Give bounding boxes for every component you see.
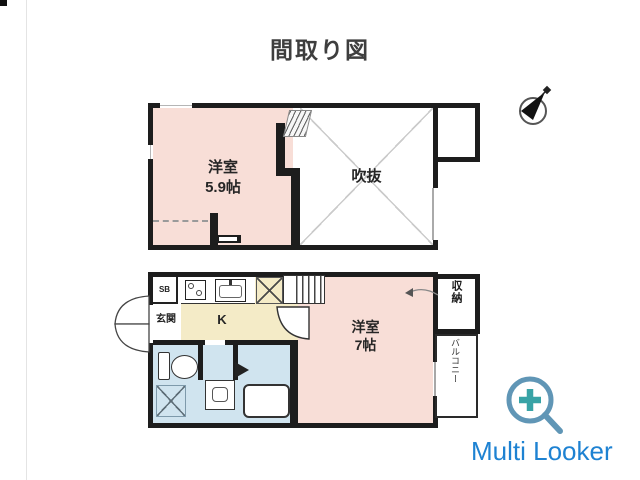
storage-label: 収納 bbox=[448, 280, 464, 328]
refrigerator-space bbox=[256, 277, 283, 304]
window-opening bbox=[433, 362, 438, 396]
zoom-plus-icon bbox=[502, 372, 568, 438]
room-name: 洋室 bbox=[352, 319, 380, 335]
room-label-2f: 洋室 5.9帖 bbox=[173, 158, 273, 197]
window-opening bbox=[429, 188, 438, 240]
north-compass-icon bbox=[515, 84, 557, 130]
toilet-icon bbox=[171, 355, 198, 379]
door-opening bbox=[205, 340, 225, 345]
room-size: 7帖 bbox=[355, 337, 377, 353]
window-opening bbox=[160, 103, 192, 108]
washer-space bbox=[156, 385, 186, 417]
2f-right-extension bbox=[433, 103, 480, 162]
2f-small-wall-gap bbox=[219, 237, 237, 241]
2f-partition-wall bbox=[291, 168, 300, 245]
stairs-icon bbox=[283, 275, 325, 304]
scan-corner-mark bbox=[0, 0, 7, 6]
1f-partition-wall bbox=[198, 345, 203, 380]
entrance-door-swing-arcs bbox=[111, 295, 151, 353]
kitchen-label: K bbox=[210, 312, 234, 329]
2f-low-partition bbox=[153, 220, 208, 222]
kitchen-counter bbox=[181, 277, 255, 304]
room-name: 洋室 bbox=[208, 159, 238, 176]
window-opening bbox=[148, 145, 153, 159]
door-swing-arc bbox=[404, 284, 440, 304]
page-edge-divider bbox=[26, 0, 27, 480]
door-swing-mark bbox=[232, 360, 252, 380]
entrance-label: 玄関 bbox=[151, 310, 181, 325]
toilet-icon bbox=[158, 352, 170, 380]
sink-icon bbox=[215, 279, 246, 302]
shoe-box: SB bbox=[153, 277, 178, 304]
stove-icon bbox=[185, 280, 206, 300]
room-label-1f: 洋室 7帖 bbox=[298, 318, 433, 354]
balcony-label: バルコニー bbox=[449, 338, 462, 414]
bathtub-icon bbox=[243, 384, 290, 418]
floor-plan-2f: 洋室 5.9帖 吹抜 bbox=[148, 103, 480, 250]
page-title: 間取り図 bbox=[0, 31, 640, 65]
floor-plan-1f: SB 玄関 K 洋室 7帖 収納 バルコニー bbox=[148, 272, 480, 428]
room-size: 5.9帖 bbox=[205, 179, 241, 196]
void-label: 吹抜 bbox=[300, 167, 433, 187]
1f-partition-wall bbox=[290, 340, 298, 423]
watermark-text: Multi Looker bbox=[471, 436, 613, 467]
washbasin-icon bbox=[205, 380, 235, 410]
